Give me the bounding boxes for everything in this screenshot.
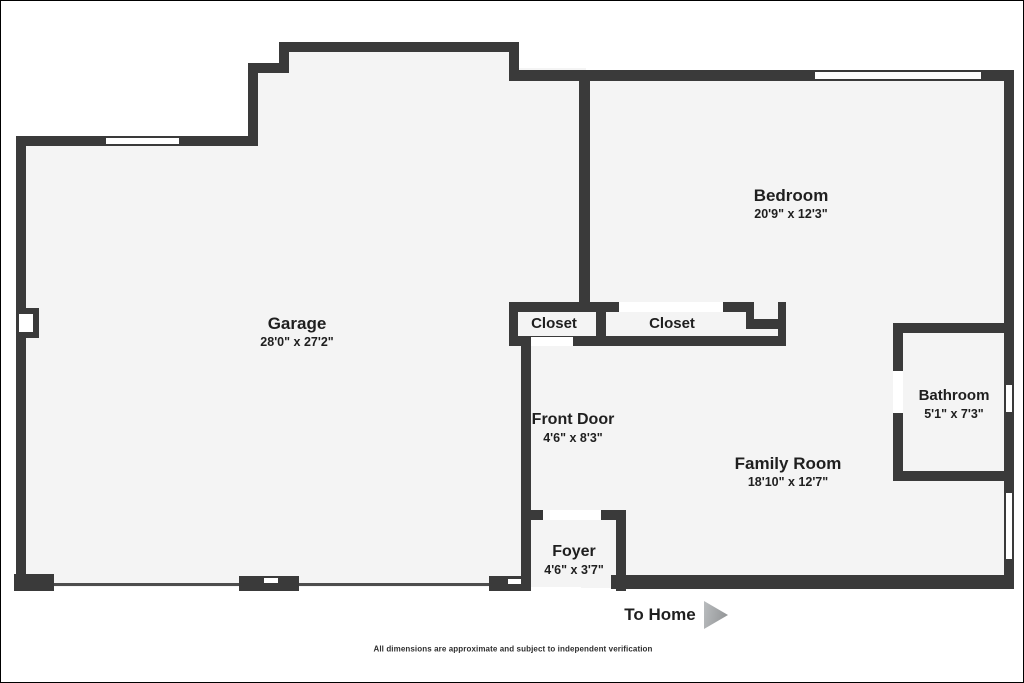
door-opening — [264, 578, 278, 583]
room-name: Garage — [268, 314, 327, 334]
room-name: Closet — [531, 314, 577, 334]
wall-segment — [893, 471, 1014, 481]
window — [104, 136, 181, 146]
room-label-bedroom: Bedroom 20'9" x 12'3" — [754, 186, 829, 222]
wall-segment — [521, 346, 531, 591]
room-label-front-door: Front Door 4'6" x 8'3" — [532, 410, 615, 446]
wall-segment — [279, 42, 519, 52]
wall-segment — [893, 323, 903, 371]
disclaimer-text: All dimensions are approximate and subje… — [373, 645, 652, 654]
room-label-family-room: Family Room 18'10" x 12'7" — [735, 454, 842, 490]
garage-door-line — [54, 583, 239, 586]
wall-segment — [893, 413, 903, 479]
room-label-garage: Garage 28'0" x 27'2" — [260, 314, 333, 350]
room-name: Family Room — [735, 454, 842, 474]
floor-region — [21, 141, 586, 587]
wall-segment — [16, 136, 26, 591]
room-name: Foyer — [552, 542, 596, 562]
floor-plan: Garage 28'0" x 27'2" Bedroom 20'9" x 12'… — [0, 0, 1024, 683]
room-dims: 4'6" x 8'3" — [543, 430, 603, 446]
room-label-closet-2: Closet — [649, 314, 695, 334]
wall-segment — [509, 70, 813, 81]
room-dims: 20'9" x 12'3" — [754, 206, 827, 222]
room-label-closet-1: Closet — [531, 314, 577, 334]
window — [1004, 491, 1014, 561]
door-opening — [893, 371, 903, 413]
garage-door-line — [299, 583, 489, 586]
room-dims: 28'0" x 27'2" — [260, 334, 333, 350]
wall-segment — [893, 323, 1014, 333]
door-opening — [619, 302, 723, 312]
room-label-bathroom: Bathroom 5'1" x 7'3" — [919, 386, 990, 422]
room-name: Bathroom — [919, 386, 990, 406]
room-dims: 18'10" x 12'7" — [748, 474, 828, 490]
window — [813, 70, 983, 81]
to-home-label: To Home — [624, 605, 695, 625]
room-dims: 5'1" x 7'3" — [924, 406, 984, 422]
wall-segment — [181, 136, 258, 146]
room-name: Closet — [649, 314, 695, 334]
wall-segment — [248, 63, 258, 146]
door-opening — [543, 510, 601, 520]
room-label-foyer: Foyer 4'6" x 3'7" — [544, 542, 604, 578]
window — [1004, 383, 1014, 414]
room-name: Bedroom — [754, 186, 829, 206]
room-dims: 4'6" x 3'7" — [544, 562, 604, 578]
room-name: Front Door — [532, 410, 615, 430]
wall-segment — [611, 575, 1014, 589]
door-opening — [508, 579, 521, 584]
door-opening — [531, 337, 573, 346]
wall-segment — [16, 136, 104, 146]
wall-segment — [14, 574, 54, 591]
door-opening — [19, 314, 33, 332]
wall-segment — [579, 78, 590, 302]
to-home-arrow-icon — [704, 601, 728, 629]
wall-segment — [1004, 70, 1014, 383]
